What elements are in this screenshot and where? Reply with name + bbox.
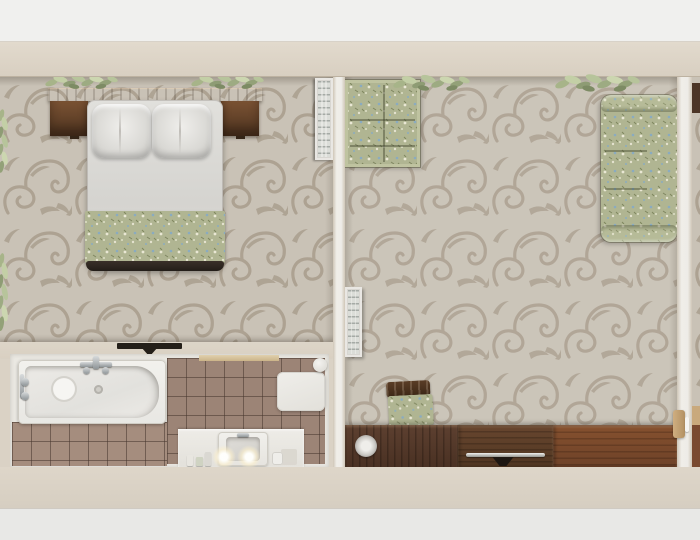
toiletry-bottle — [205, 452, 211, 466]
bathtub — [18, 360, 166, 424]
credenza-right-section — [553, 425, 677, 467]
candle-glow-right — [237, 445, 261, 468]
bathtub-basin — [25, 366, 159, 418]
pillow-crease — [119, 108, 121, 153]
bathtub-round-pad — [51, 376, 77, 402]
tub-faucet-handle — [83, 367, 90, 374]
outer-wall-bottom — [0, 508, 700, 540]
outer-wall-top — [0, 0, 700, 42]
towel-roll — [313, 358, 327, 372]
sofa — [601, 95, 677, 242]
sofa-seat-seam — [605, 150, 647, 152]
chair-cushion — [388, 394, 435, 427]
pillow-left — [92, 104, 151, 158]
toiletry-bottle — [187, 455, 193, 466]
bathtub-drain — [94, 385, 103, 394]
tub-left-knob — [21, 378, 29, 386]
chair-fabric — [388, 394, 435, 427]
toiletry-jar — [272, 452, 283, 465]
bottom-wall-band — [0, 467, 700, 508]
tub-faucet-spout — [93, 356, 99, 369]
sofa-seat-seam — [605, 188, 647, 190]
bedroom-bottom-shadow — [0, 334, 333, 342]
ac-grille-slats — [318, 81, 330, 157]
credenza-left-section — [345, 425, 458, 467]
loveseat — [345, 80, 420, 167]
bedroom-floor — [0, 77, 333, 342]
pillow-crease — [179, 108, 181, 153]
round-plate — [355, 435, 377, 457]
toiletry-box — [281, 449, 297, 465]
sliver-wood-shelf — [692, 406, 700, 426]
nightstand-foot — [236, 136, 245, 139]
pillow-right — [152, 104, 211, 158]
bathroom-floor — [10, 354, 329, 468]
nightstand-left — [50, 101, 88, 136]
candle-glow-left — [212, 445, 236, 468]
side-chair — [385, 380, 435, 429]
loveseat-seam — [350, 145, 415, 147]
washbasin-tap — [237, 433, 249, 437]
drawer-handle — [466, 453, 545, 457]
tub-left-knob — [21, 392, 29, 400]
credenza-middle-section — [458, 425, 553, 467]
loveseat-seam — [350, 119, 415, 121]
sliver-wood-furniture — [692, 83, 700, 113]
bath-mat — [277, 372, 325, 411]
sofa-armrest-top — [601, 95, 677, 112]
plant-headboard-right — [192, 77, 264, 90]
drawer-notch — [491, 457, 515, 466]
sliver-credenza — [692, 425, 700, 467]
blanket-fabric — [85, 211, 225, 263]
wall-between-rooms — [333, 77, 345, 467]
wall-door-handle — [673, 410, 685, 438]
radiator-slats — [348, 290, 359, 354]
ac-grille — [315, 78, 333, 160]
plant-living-left — [394, 72, 470, 92]
wall-handle-detail — [685, 417, 689, 432]
sofa-back-cushions — [647, 112, 674, 225]
plant-headboard-left — [46, 77, 118, 90]
plant-left-lower — [0, 254, 10, 330]
adjacent-room-sliver — [692, 77, 700, 467]
credenza — [345, 425, 677, 467]
tile-floor-under-tub — [12, 422, 167, 466]
toiletry-bottle — [196, 457, 203, 466]
plant-left-upper — [0, 110, 10, 172]
nightstand-right — [221, 101, 259, 136]
floor-plan-render — [0, 0, 700, 540]
radiator-grille — [345, 287, 362, 357]
bed-footboard — [86, 261, 224, 271]
loveseat-seam — [383, 85, 385, 161]
sofa-armrest-bottom — [601, 225, 677, 242]
bed-blanket — [85, 211, 225, 263]
nightstand-foot — [70, 136, 79, 139]
right-wall — [677, 77, 692, 467]
plant-living-right — [556, 71, 640, 93]
tub-faucet-handle — [102, 367, 109, 374]
wood-shelf — [199, 355, 279, 361]
